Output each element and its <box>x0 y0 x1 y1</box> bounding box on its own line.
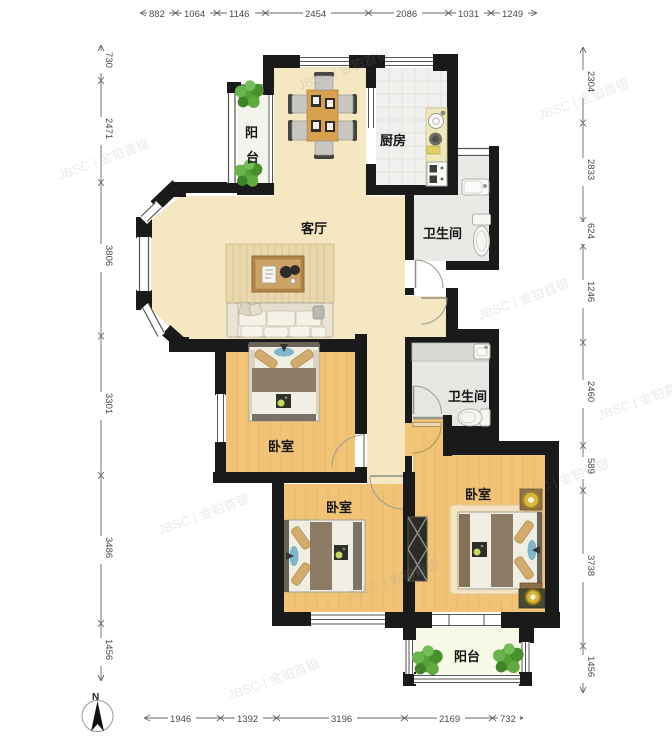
svg-text:1246: 1246 <box>585 281 596 302</box>
svg-text:2460: 2460 <box>585 381 596 402</box>
svg-text:1456: 1456 <box>585 656 596 677</box>
svg-text:1031: 1031 <box>458 9 479 20</box>
svg-text:2833: 2833 <box>585 159 596 180</box>
svg-text:730: 730 <box>103 52 114 68</box>
svg-text:台: 台 <box>246 150 259 165</box>
svg-text:阳台: 阳台 <box>454 649 480 664</box>
svg-text:卧室: 卧室 <box>268 439 294 454</box>
svg-text:2454: 2454 <box>305 9 326 20</box>
svg-text:1249: 1249 <box>502 9 523 20</box>
svg-text:2086: 2086 <box>396 9 417 20</box>
svg-text:厨房: 厨房 <box>380 133 406 148</box>
svg-text:3486: 3486 <box>103 537 114 558</box>
svg-text:卧室: 卧室 <box>326 500 352 515</box>
svg-text:1064: 1064 <box>184 9 205 20</box>
svg-text:卫生间: 卫生间 <box>448 389 487 404</box>
svg-text:1392: 1392 <box>237 714 258 725</box>
svg-text:732: 732 <box>500 714 516 725</box>
svg-text:1946: 1946 <box>170 714 191 725</box>
svg-text:3806: 3806 <box>103 245 114 266</box>
svg-text:卫生间: 卫生间 <box>423 226 462 241</box>
svg-text:882: 882 <box>149 9 165 20</box>
svg-text:2471: 2471 <box>103 118 114 139</box>
svg-text:客厅: 客厅 <box>301 221 327 236</box>
svg-text:1456: 1456 <box>103 639 114 660</box>
svg-text:3301: 3301 <box>103 393 114 414</box>
svg-text:3738: 3738 <box>585 555 596 576</box>
svg-text:1146: 1146 <box>229 9 249 20</box>
svg-text:阳: 阳 <box>245 125 258 140</box>
svg-text:3196: 3196 <box>331 714 352 725</box>
svg-text:卧室: 卧室 <box>465 487 491 502</box>
svg-text:2169: 2169 <box>439 714 460 725</box>
svg-text:624: 624 <box>585 223 596 239</box>
